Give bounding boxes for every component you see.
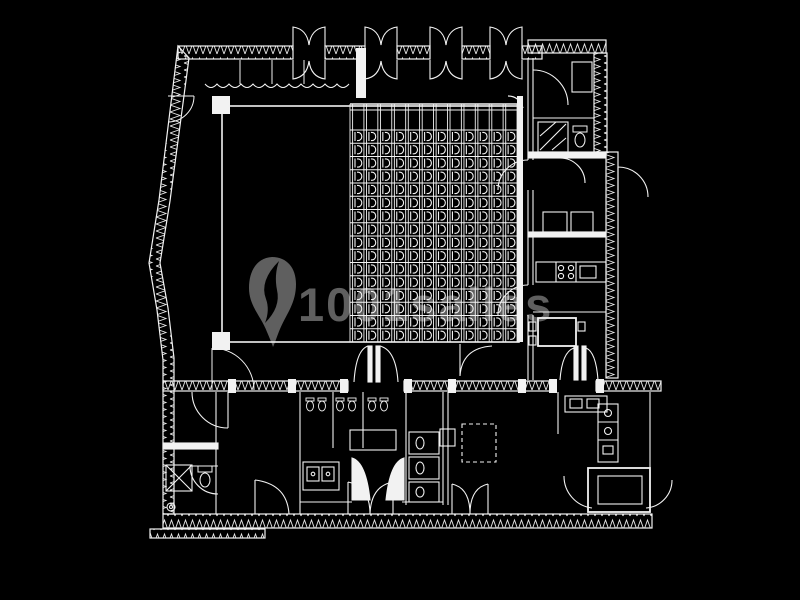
screenshot-canvas: 1001salles — [0, 0, 800, 600]
floor-plan: 1001salles — [0, 0, 800, 600]
